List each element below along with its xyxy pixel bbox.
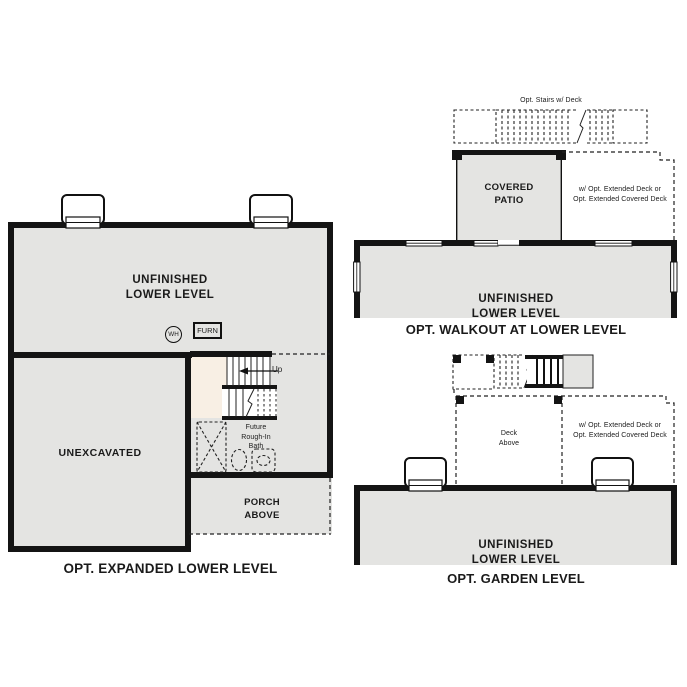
garden-plan-linework [354, 355, 677, 565]
future-bath-label: Future Rough-In Bath [226, 423, 286, 452]
covered-patio-label: COVERED PATIO [459, 181, 559, 207]
walkout-ext-deck-label: w/ Opt. Extended Deck or Opt. Extended C… [558, 185, 682, 204]
patio-door [498, 240, 519, 246]
expanded-room-label: UNFINISHED LOWER LEVEL [70, 273, 270, 303]
unexcavated-label: UNEXCAVATED [30, 446, 170, 461]
porch-above-label: PORCH ABOVE [212, 496, 312, 522]
garden-room-label: UNFINISHED LOWER LEVEL [416, 538, 616, 568]
expanded-plan-title: OPT. EXPANDED LOWER LEVEL [10, 561, 331, 577]
window-well [592, 458, 633, 491]
deck-stairs-solid [525, 355, 593, 388]
walkout-plan-title: OPT. WALKOUT AT LOWER LEVEL [366, 322, 666, 338]
furnace-symbol: FURN [193, 322, 222, 339]
walkout-room-label: UNFINISHED LOWER LEVEL [416, 292, 616, 322]
water-heater-symbol: WH [165, 326, 182, 343]
floorplan-sheet: UNFINISHED LOWER LEVEL WH FURN Up Future… [0, 0, 687, 687]
walkout-plan-linework [354, 110, 677, 318]
garden-plan-title: OPT. GARDEN LEVEL [366, 571, 666, 587]
window-well [250, 195, 292, 228]
garden-ext-deck-label: w/ Opt. Extended Deck or Opt. Extended C… [558, 421, 682, 440]
opt-stairs-label: Opt. Stairs w/ Deck [481, 96, 621, 106]
stairs-up-label: Up [272, 365, 292, 375]
opt-deck-stairs [454, 110, 647, 143]
deck-above-label: Deck Above [469, 429, 549, 448]
stair-break-line [577, 110, 586, 143]
window-well [62, 195, 104, 228]
window-well [405, 458, 446, 491]
stair-landing [190, 356, 227, 418]
